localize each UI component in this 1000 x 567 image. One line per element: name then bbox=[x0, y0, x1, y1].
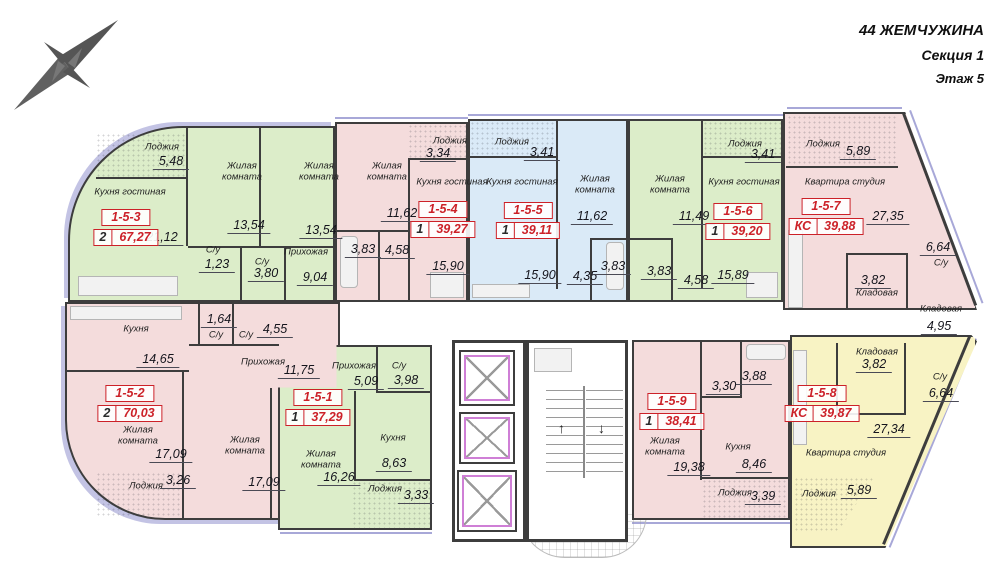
room-label: Жилая комната bbox=[566, 174, 624, 197]
room-area: 15,90 bbox=[518, 268, 561, 284]
room-label: Лоджия bbox=[802, 488, 836, 499]
room-label: С/у bbox=[933, 371, 947, 382]
room-area: 16,26 bbox=[317, 470, 360, 486]
room-label: Лоджия bbox=[145, 141, 179, 152]
room-label: Жилая комната bbox=[216, 435, 274, 458]
kitchen-counter bbox=[78, 276, 178, 296]
wall bbox=[198, 302, 200, 346]
kitchen-counter bbox=[70, 306, 182, 320]
stairs-down-arrow: ↓ bbox=[598, 420, 605, 436]
window-line-top bbox=[787, 107, 902, 109]
room-area: 15,89 bbox=[711, 268, 754, 284]
room-area: 4,58 bbox=[678, 273, 714, 289]
wall bbox=[186, 128, 188, 246]
apartment-number-badge: 1-5-8 КС39,87 bbox=[785, 385, 860, 422]
room-area: 3,39 bbox=[745, 489, 781, 505]
window-line-bottom bbox=[280, 532, 432, 534]
room-area: 3,83 bbox=[345, 242, 381, 258]
elevator-icon bbox=[459, 350, 515, 406]
wall bbox=[376, 391, 432, 393]
room-label: Кухня гостиная bbox=[94, 186, 165, 197]
room-area: 5,09 bbox=[348, 374, 384, 390]
room-label: Прихожая bbox=[284, 246, 328, 257]
room-area: 3,88 bbox=[736, 369, 772, 385]
room-label: Кухня гостиная bbox=[486, 176, 557, 187]
wall bbox=[378, 230, 380, 302]
floor-title: Этаж 5 bbox=[859, 71, 984, 86]
room-area: 3,82 bbox=[856, 357, 892, 373]
room-label: Жилая комната bbox=[213, 161, 271, 184]
window-line-top bbox=[335, 117, 468, 119]
room-label: Жилая комната bbox=[358, 161, 416, 184]
room-area: 3,41 bbox=[745, 147, 781, 163]
room-label: Квартира студия bbox=[805, 176, 885, 187]
room-label: Кладовая bbox=[920, 303, 962, 314]
room-area: 3,41 bbox=[524, 145, 560, 161]
apartment-number-badge: 1-5-4 139,27 bbox=[410, 201, 475, 238]
wall bbox=[630, 238, 673, 240]
room-area: 27,34 bbox=[867, 422, 910, 438]
kitchen-counter bbox=[788, 230, 803, 308]
room-label: Кладовая bbox=[856, 287, 898, 298]
project-title: 44 ЖЕМЧУЖИНА bbox=[859, 22, 984, 39]
window-line-top bbox=[468, 114, 783, 116]
room-area: 3,80 bbox=[248, 266, 284, 282]
apartment-number-badge: 1-5-5 139,11 bbox=[496, 202, 560, 239]
room-area: 14,65 bbox=[136, 352, 179, 368]
room-area: 8,46 bbox=[736, 457, 772, 473]
wall bbox=[240, 248, 242, 302]
room-label: Жилая комната bbox=[290, 161, 348, 184]
room-label: Жилая комната bbox=[109, 425, 167, 448]
kitchen-counter bbox=[430, 272, 464, 298]
room-label: Кухня bbox=[380, 432, 405, 443]
stair-divider bbox=[583, 386, 585, 478]
wall bbox=[846, 253, 848, 310]
room-label: Лоджия bbox=[433, 135, 467, 146]
room-label: Жилая комната bbox=[636, 436, 694, 459]
room-area: 27,35 bbox=[866, 209, 909, 225]
wall bbox=[786, 166, 898, 168]
room-label: С/у bbox=[934, 257, 948, 268]
room-label: С/у bbox=[392, 360, 406, 371]
room-area: 3,83 bbox=[595, 259, 631, 275]
stair-landing-box bbox=[534, 348, 572, 372]
room-area: 9,04 bbox=[297, 270, 333, 286]
room-area: 3,34 bbox=[420, 146, 456, 162]
room-label: Кухня гостиная bbox=[708, 176, 779, 187]
elevator-icon bbox=[457, 470, 517, 532]
room-area: 3,83 bbox=[641, 264, 677, 280]
compass-rose-icon bbox=[8, 14, 126, 116]
room-area: 1,23 bbox=[199, 257, 235, 273]
room-label: С/у bbox=[239, 329, 253, 340]
section-title: Секция 1 bbox=[859, 47, 984, 63]
wall bbox=[702, 396, 742, 398]
room-area: 4,58 bbox=[379, 243, 415, 259]
wall bbox=[701, 121, 703, 289]
room-area: 11,62 bbox=[571, 209, 613, 225]
room-area: 3,26 bbox=[160, 473, 196, 489]
room-area: 1,64 bbox=[201, 312, 237, 328]
room-label: Жилая комната bbox=[292, 449, 350, 472]
wall bbox=[337, 230, 410, 232]
apartment-number-badge: 1-5-6 139,20 bbox=[705, 203, 770, 240]
wall bbox=[846, 253, 908, 255]
room-area: 5,89 bbox=[840, 144, 876, 160]
room-area: 17,09 bbox=[149, 447, 192, 463]
room-label: С/у bbox=[206, 244, 220, 255]
apartment-number-badge: 1-5-3 267,27 bbox=[93, 209, 158, 246]
room-label: Лоджия bbox=[129, 480, 163, 491]
room-label: С/у bbox=[209, 329, 223, 340]
room-label: Лоджия bbox=[806, 138, 840, 149]
wall bbox=[702, 477, 790, 479]
wall bbox=[590, 238, 628, 240]
room-area: 13,54 bbox=[299, 223, 342, 239]
apartment-number-badge: 1-5-9 138,41 bbox=[639, 393, 704, 430]
apartment-number-badge: 1-5-7 КС39,88 bbox=[789, 198, 864, 235]
room-area: 4,95 bbox=[921, 319, 957, 335]
room-area: 17,09 bbox=[242, 475, 285, 491]
room-label: Квартира студия bbox=[806, 447, 886, 458]
elevator-icon bbox=[459, 412, 515, 464]
room-label: Прихожая bbox=[332, 360, 376, 371]
room-area: 5,48 bbox=[153, 154, 189, 170]
kitchen-counter bbox=[472, 284, 530, 298]
wall bbox=[354, 479, 432, 481]
room-area: 15,90 bbox=[426, 259, 469, 275]
room-label: Кухня гостиная bbox=[416, 176, 487, 187]
room-area: 6,64 bbox=[923, 386, 959, 402]
floor-plan: 44 ЖЕМЧУЖИНА Секция 1 Этаж 5 bbox=[0, 0, 1000, 567]
room-area: 8,63 bbox=[376, 456, 412, 472]
apartment-number-badge: 1-5-2 270,03 bbox=[97, 385, 162, 422]
wall bbox=[67, 370, 189, 372]
room-area: 3,33 bbox=[398, 488, 434, 504]
room-area: 5,89 bbox=[841, 483, 877, 499]
room-area: 6,64 bbox=[920, 240, 956, 256]
room-area: 13,54 bbox=[227, 218, 270, 234]
room-area: 4,55 bbox=[257, 322, 293, 338]
wall bbox=[189, 344, 279, 346]
room-label: Кухня bbox=[725, 441, 750, 452]
wall bbox=[906, 253, 908, 310]
title-block: 44 ЖЕМЧУЖИНА Секция 1 Этаж 5 bbox=[859, 22, 984, 86]
room-label: Кухня bbox=[123, 323, 148, 334]
room-area: 19,38 bbox=[667, 460, 710, 476]
wall bbox=[182, 372, 184, 520]
stairs-up-arrow: ↑ bbox=[558, 420, 565, 436]
bathtub bbox=[746, 344, 786, 360]
room-area: 3,98 bbox=[388, 373, 424, 389]
room-area: 11,75 bbox=[278, 363, 320, 379]
wall bbox=[904, 343, 906, 415]
window-line-bottom bbox=[632, 522, 790, 524]
apartment-number-badge: 1-5-1 137,29 bbox=[285, 389, 350, 426]
room-label: Кладовая bbox=[856, 346, 898, 357]
room-label: Жилая комната bbox=[641, 174, 699, 197]
wall bbox=[354, 391, 356, 481]
